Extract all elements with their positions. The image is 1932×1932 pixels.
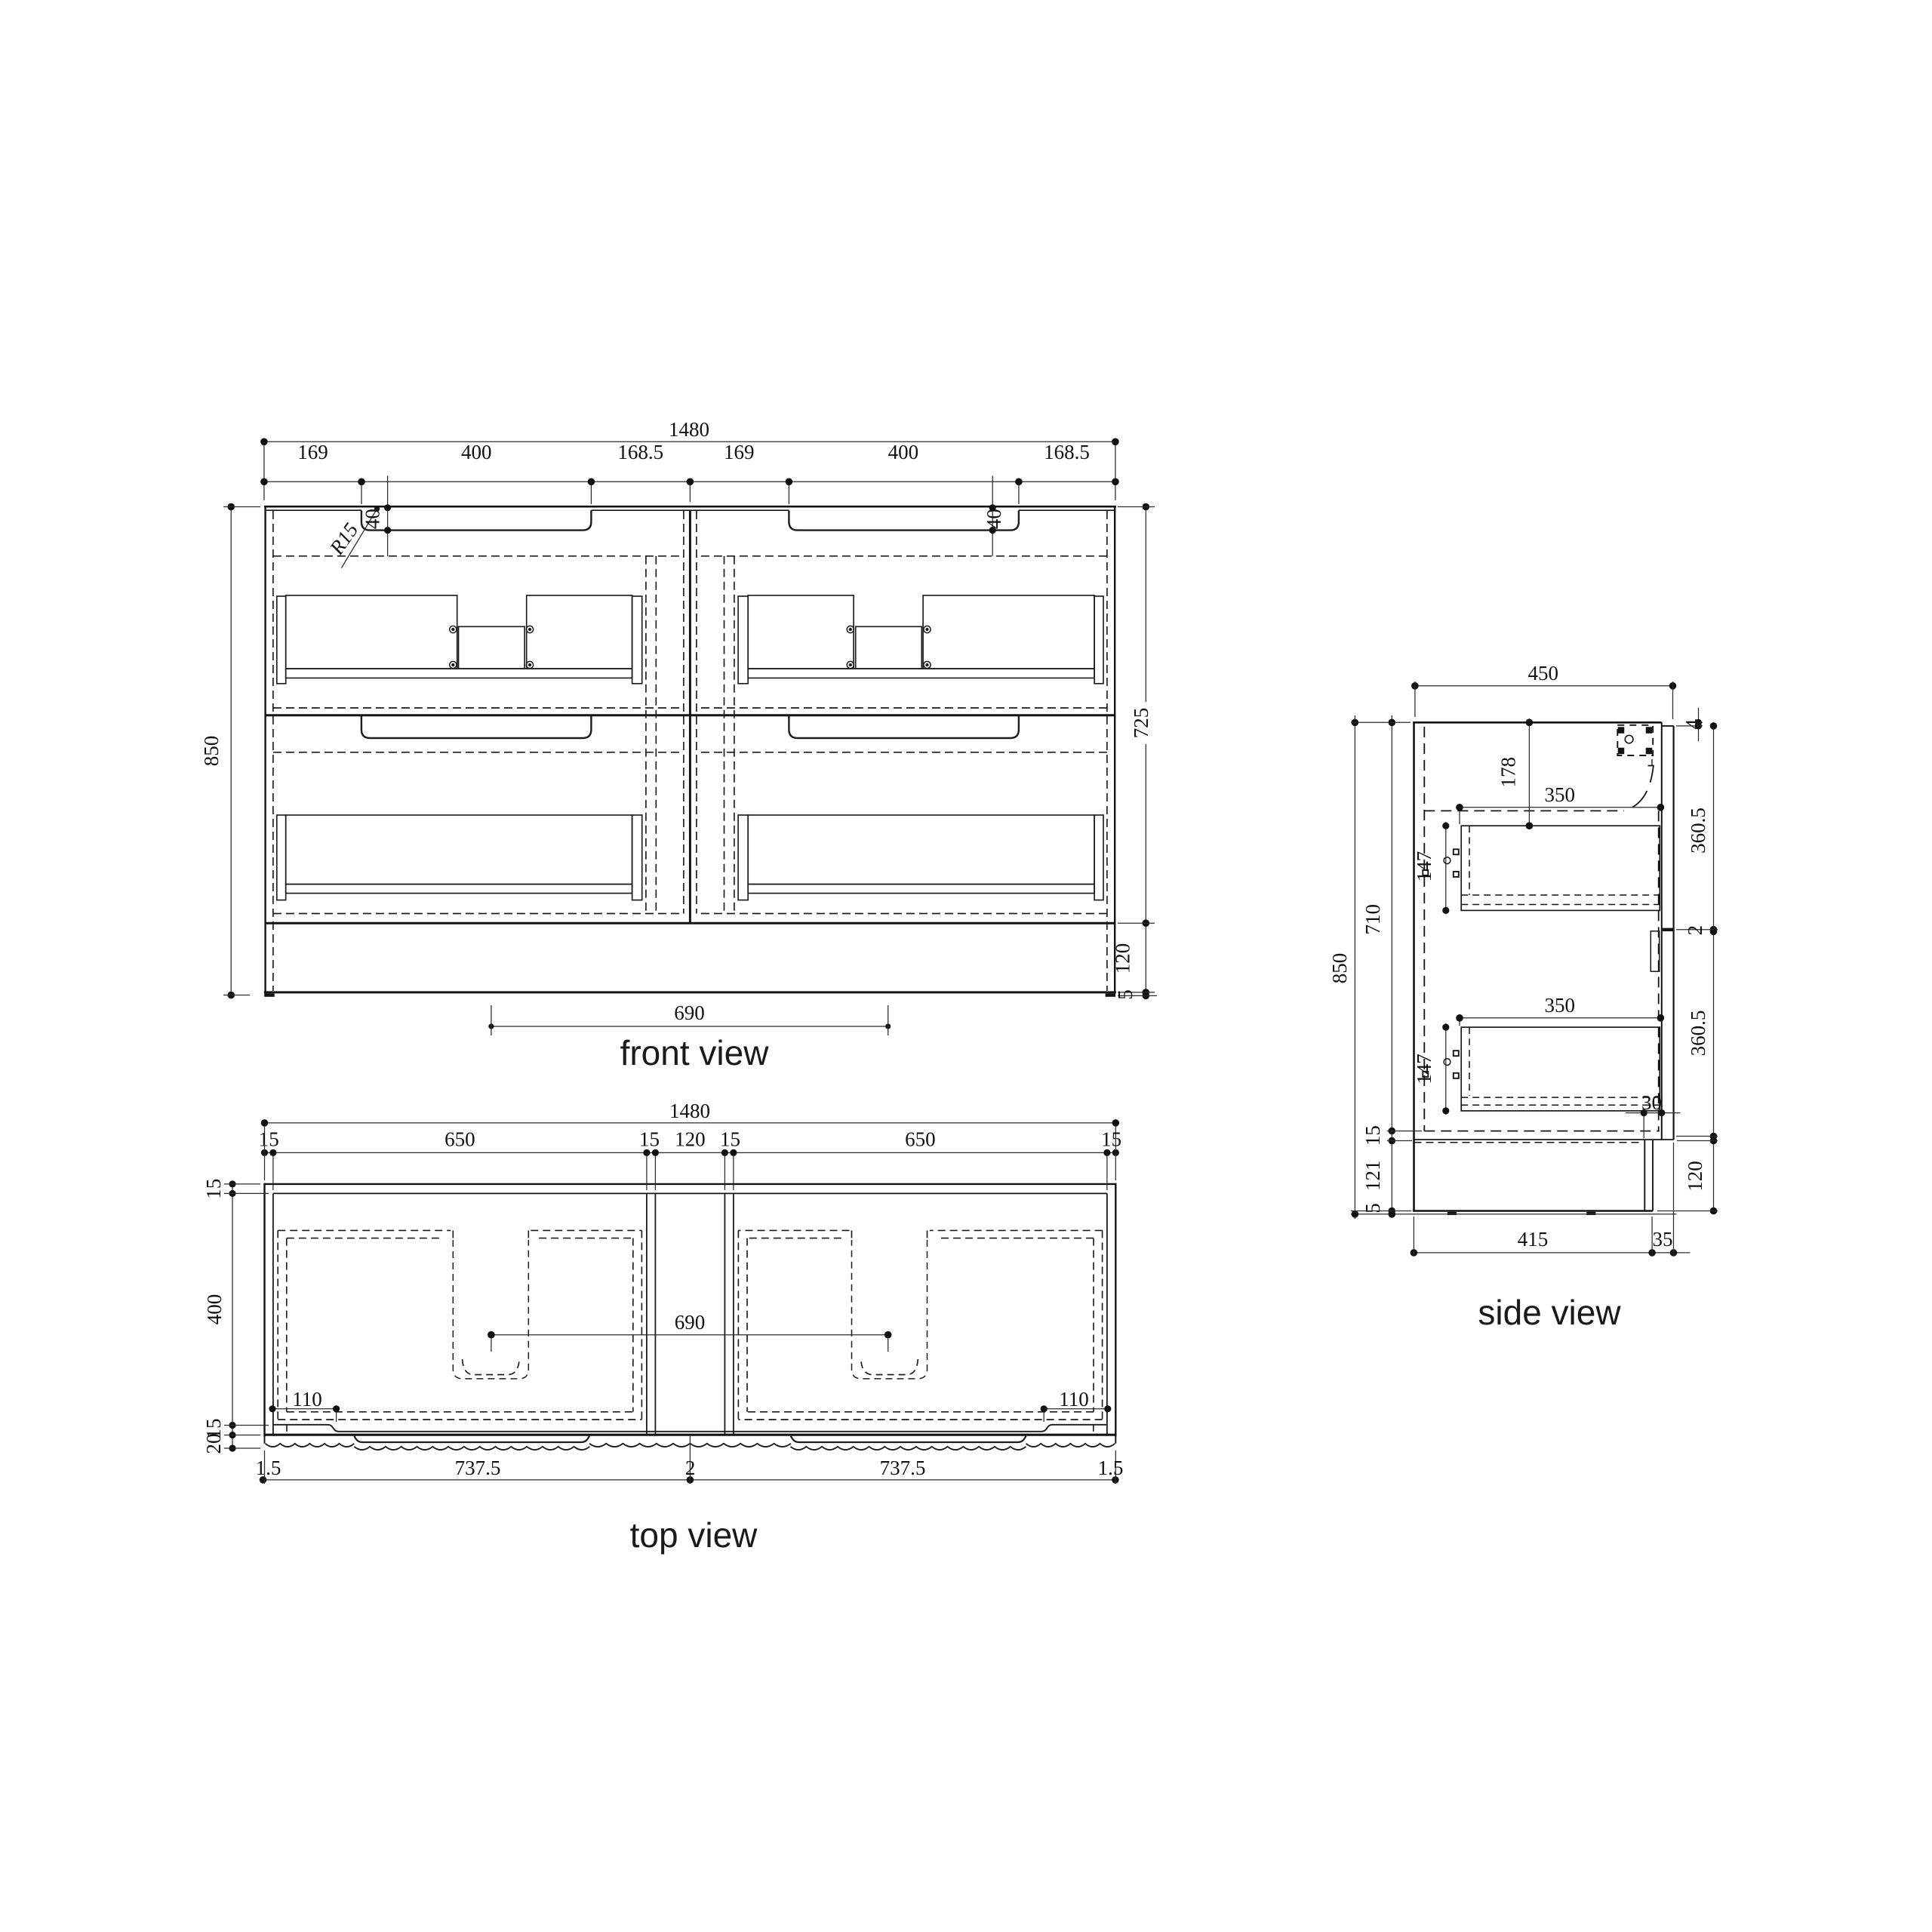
svg-text:400: 400 — [203, 1294, 226, 1325]
svg-text:168.5: 168.5 — [617, 441, 663, 463]
svg-text:20: 20 — [202, 1434, 225, 1454]
svg-text:690: 690 — [675, 1311, 706, 1334]
svg-text:front view: front view — [620, 1033, 770, 1072]
svg-text:15: 15 — [720, 1128, 740, 1151]
svg-text:169: 169 — [297, 441, 328, 463]
svg-text:400: 400 — [461, 441, 492, 463]
svg-text:2: 2 — [685, 1457, 696, 1479]
svg-text:35: 35 — [1653, 1228, 1673, 1251]
svg-text:450: 450 — [1527, 662, 1558, 685]
svg-text:737.5: 737.5 — [455, 1457, 501, 1479]
svg-text:40: 40 — [361, 509, 384, 529]
svg-text:40: 40 — [983, 509, 1005, 529]
svg-text:1.5: 1.5 — [256, 1457, 281, 1479]
svg-text:169: 169 — [724, 441, 755, 463]
svg-text:4: 4 — [1681, 718, 1704, 729]
svg-text:30: 30 — [1641, 1091, 1662, 1114]
svg-text:110: 110 — [292, 1388, 322, 1411]
svg-text:850: 850 — [200, 736, 223, 767]
svg-text:350: 350 — [1545, 994, 1576, 1017]
svg-text:121: 121 — [1361, 1160, 1384, 1191]
svg-text:5: 5 — [1361, 1203, 1384, 1214]
svg-text:737.5: 737.5 — [880, 1457, 926, 1479]
svg-text:168.5: 168.5 — [1044, 441, 1090, 463]
svg-text:110: 110 — [1059, 1388, 1089, 1411]
svg-text:650: 650 — [905, 1128, 936, 1151]
svg-text:350: 350 — [1545, 783, 1576, 806]
svg-text:15: 15 — [1101, 1128, 1121, 1151]
svg-text:1480: 1480 — [669, 1100, 710, 1122]
svg-text:15: 15 — [202, 1179, 225, 1199]
svg-text:15: 15 — [259, 1128, 279, 1151]
svg-text:360.5: 360.5 — [1687, 1011, 1709, 1057]
svg-text:2: 2 — [1684, 925, 1706, 936]
svg-text:360.5: 360.5 — [1687, 808, 1709, 854]
svg-text:650: 650 — [445, 1128, 475, 1151]
svg-text:710: 710 — [1361, 904, 1384, 935]
svg-text:1480: 1480 — [669, 418, 709, 441]
svg-text:690: 690 — [674, 1001, 705, 1024]
svg-text:15: 15 — [1361, 1125, 1384, 1146]
svg-text:147: 147 — [1413, 851, 1435, 882]
svg-text:top view: top view — [630, 1515, 758, 1555]
svg-text:side view: side view — [1478, 1293, 1621, 1332]
svg-text:415: 415 — [1518, 1228, 1549, 1251]
svg-text:400: 400 — [888, 441, 919, 463]
svg-text:850: 850 — [1328, 953, 1351, 984]
svg-text:120: 120 — [1112, 943, 1134, 974]
svg-text:5: 5 — [1114, 989, 1137, 1000]
svg-text:147: 147 — [1413, 1054, 1435, 1084]
svg-text:120: 120 — [1684, 1161, 1706, 1192]
svg-text:1.5: 1.5 — [1098, 1457, 1124, 1479]
svg-text:120: 120 — [675, 1128, 706, 1151]
svg-text:725: 725 — [1130, 708, 1152, 739]
svg-text:178: 178 — [1497, 757, 1520, 788]
svg-text:15: 15 — [639, 1128, 660, 1151]
